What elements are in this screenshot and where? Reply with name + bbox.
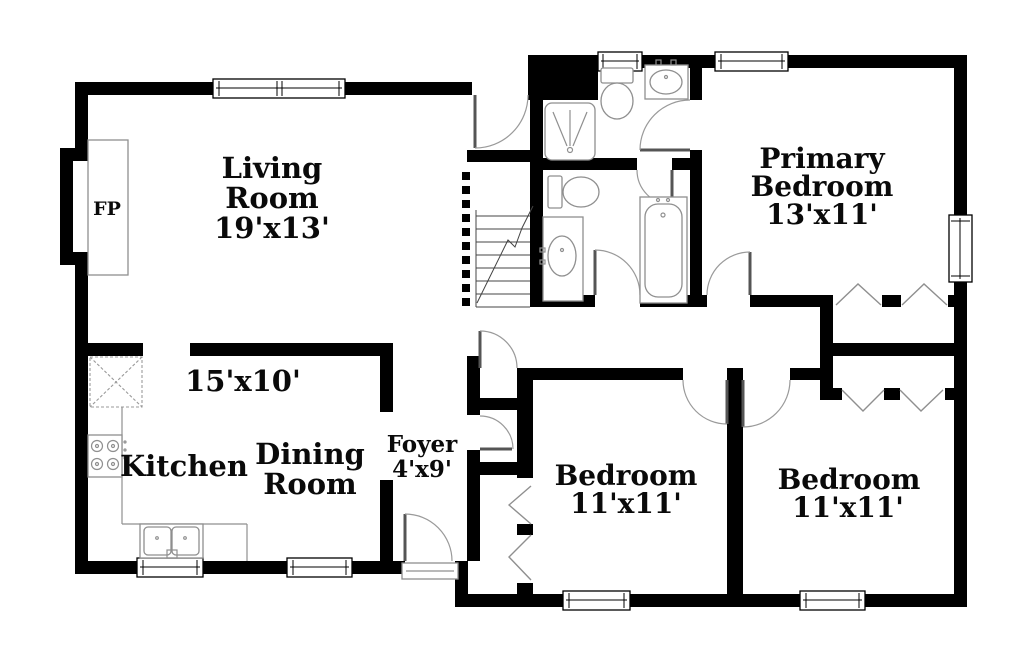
fireplace-label: FP [93,198,121,220]
shower-icon [545,103,595,160]
fireplace-bump-wall [60,148,73,265]
dining-room-label: Room [263,467,357,501]
bath2-door-swing-icon [595,250,640,295]
toilet-icon [601,68,633,119]
bedroom1-closet-bifold-icon [509,486,531,524]
bedroom2-window-icon [800,591,865,610]
bedroom1-closet-bifold-icon [509,535,531,580]
chimney-mass [528,55,598,100]
back-door-swing-icon [475,95,528,148]
kitchen-sink-icon [140,524,203,558]
bedroom2-closet-bifold-icon [900,390,943,411]
primary-bedroom-top-window-icon [715,52,788,71]
floor-plan-drawing: Living Room 19'x13' FP Primary Bedroom 1… [0,0,1024,672]
dining-room-dims: 15'x10' [185,364,301,398]
foyer-dims: 4'x9' [392,456,452,483]
dining-room-label: Dining [255,437,365,471]
foyer-closet-door-swing-icon [480,416,513,449]
bedroom2-dims: 11'x11' [792,491,904,524]
living-room-label: Living [222,151,323,185]
primary-closet-bifold-icon [836,284,881,305]
primary-bedroom-side-window-icon [949,215,972,282]
kitchen-window-icon [137,558,203,577]
front-door-swing-icon [402,514,458,579]
bathtub-icon [640,197,687,303]
fireplace-bump-wall [60,252,88,265]
vanity-sink-icon [540,217,583,301]
bedroom1-dims: 11'x11' [570,487,682,520]
vanity-sink-icon [645,60,688,99]
living-room-label: Room [225,181,319,215]
bath1-door-swing-icon [640,100,690,150]
refrigerator-icon [90,357,142,407]
primary-bedroom-dims: 13'x11' [766,198,878,231]
floor-plan: Living Room 19'x13' FP Primary Bedroom 1… [0,0,1024,672]
toilet-icon [548,176,599,208]
stairs-icon [462,172,533,307]
foyer-label: Foyer [387,431,458,458]
bedroom2-closet-bifold-icon [842,390,884,411]
living-room-window-icon [213,79,345,98]
bedroom1-window-icon [563,591,630,610]
dining-window-icon [287,558,352,577]
living-room-dims: 19'x13' [214,211,330,245]
hall-closet-door-swing-icon [480,331,517,368]
kitchen-label: Kitchen [120,449,248,483]
primary-bedroom-door-swing-icon [707,252,750,295]
primary-closet-bifold-icon [902,284,947,305]
bedroom2-door-swing-icon [743,380,790,427]
bedroom1-door-swing-icon [683,380,727,424]
